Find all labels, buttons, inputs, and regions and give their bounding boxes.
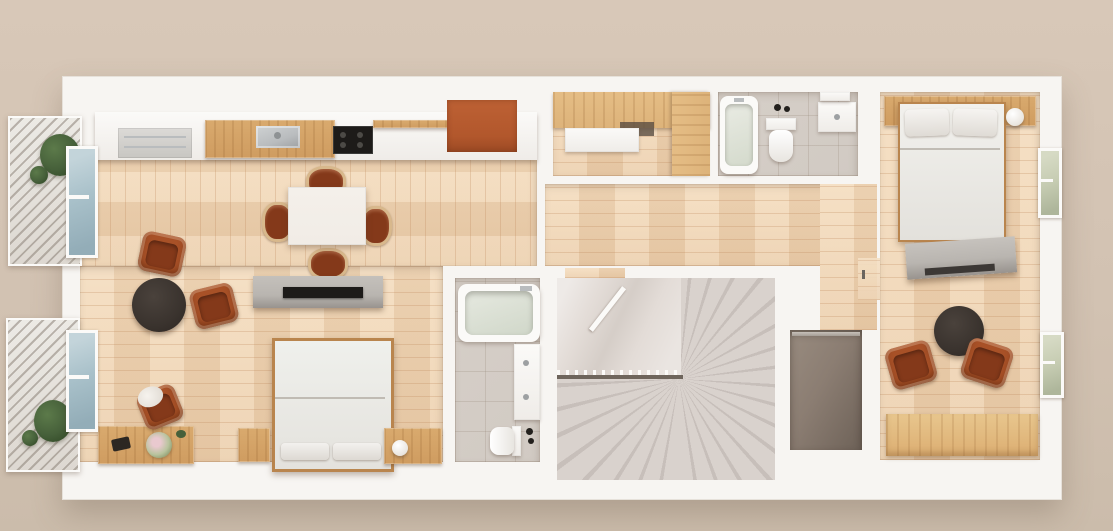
cooktop-burner-3 <box>340 142 346 148</box>
window-mullion-2 <box>1043 361 1055 364</box>
toilet-main-brush <box>526 428 533 435</box>
toilet-main-brush-2 <box>528 438 534 444</box>
coffee-table <box>132 278 186 332</box>
bed-left-pillow-1 <box>281 443 329 460</box>
bed-left <box>272 338 394 472</box>
appliance-handle-bar-2 <box>124 146 186 148</box>
kitchen-sink <box>256 126 300 148</box>
bedroom-door-handle <box>862 270 865 279</box>
hallway-floor <box>545 184 858 266</box>
toilet-top <box>766 118 796 162</box>
nightstand-ball-lamp <box>392 440 408 456</box>
tv-console <box>253 276 383 308</box>
vanity-main-faucet-2 <box>523 394 529 400</box>
bathtub-top <box>720 96 758 174</box>
bathtub-top-faucet <box>734 98 744 102</box>
desk-clutter-dark <box>111 436 131 451</box>
toilet-top-bowl <box>769 130 793 162</box>
closet-wardrobe-side <box>672 92 710 176</box>
kitchen-appliance-front <box>118 128 192 158</box>
cooktop-burner-4 <box>357 142 363 148</box>
balcony-lower-plant-small <box>22 430 38 446</box>
desk-plant-sprig <box>176 430 186 438</box>
bedroom-door-threshold <box>858 258 880 300</box>
toilet-main <box>490 424 522 458</box>
sink-faucet <box>274 132 281 139</box>
dresser-open-slot <box>925 264 995 276</box>
vanity-main-faucet-1 <box>523 360 529 366</box>
niche-rail <box>792 332 860 336</box>
closet-desk <box>565 128 639 152</box>
hallway-floor-branch <box>820 184 877 330</box>
bed-right-pillow-2 <box>953 108 998 137</box>
kitchen-orange-accent-panel <box>447 100 517 152</box>
stair-landing-edge <box>557 375 683 379</box>
bathtub-main-basin <box>465 291 533 335</box>
bed-left-duvet-fold <box>275 397 385 399</box>
living-window-upper <box>66 146 98 258</box>
window-mullion <box>1041 179 1053 182</box>
appliance-handle-bar <box>124 136 186 138</box>
building-shell <box>62 76 1062 500</box>
cooktop-burner <box>340 132 346 138</box>
cooktop-burner-2 <box>357 132 363 138</box>
window-mullion-4 <box>69 375 89 379</box>
kitchen-cooktop <box>333 126 373 154</box>
staircase-doorway-threshold <box>565 268 625 278</box>
desk-flower-bouquet <box>146 432 172 458</box>
bedroom-bench <box>886 414 1038 456</box>
nightstand-left <box>238 428 270 462</box>
toilet-top-tank <box>766 118 796 130</box>
vanity-top-faucet <box>834 114 840 120</box>
storage-niche <box>790 330 862 450</box>
tv-screen <box>283 287 363 298</box>
bed-right <box>898 102 1006 242</box>
bed-left-pillow-2 <box>333 443 381 460</box>
bathtub-main-faucet <box>520 286 532 291</box>
bathtub-main <box>458 284 540 342</box>
bedroom-window-upper <box>1038 148 1062 218</box>
bed-right-pillow-1 <box>905 108 950 137</box>
vanity-top-bathroom <box>818 102 856 132</box>
balcony-upper-plant-small <box>30 166 48 184</box>
bedroom-dresser <box>905 236 1017 280</box>
accessory-dot-2 <box>784 106 790 112</box>
desk <box>98 426 194 464</box>
bedroom-ball-lamp <box>1006 108 1024 126</box>
toilet-accessories <box>774 104 790 112</box>
vanity-main-bathroom <box>514 344 540 420</box>
staircase-room <box>557 278 775 480</box>
bedroom-window-lower <box>1040 332 1064 398</box>
bed-right-duvet-fold <box>900 148 1000 150</box>
bathroom-top-shelf <box>820 92 850 101</box>
bathtub-top-basin <box>725 104 753 166</box>
accessory-dot <box>774 104 781 111</box>
dining-table <box>288 187 366 245</box>
floorplan-render <box>0 0 1113 531</box>
toilet-main-bowl <box>490 427 514 455</box>
window-mullion-3 <box>69 195 89 199</box>
living-window-lower <box>66 330 98 432</box>
